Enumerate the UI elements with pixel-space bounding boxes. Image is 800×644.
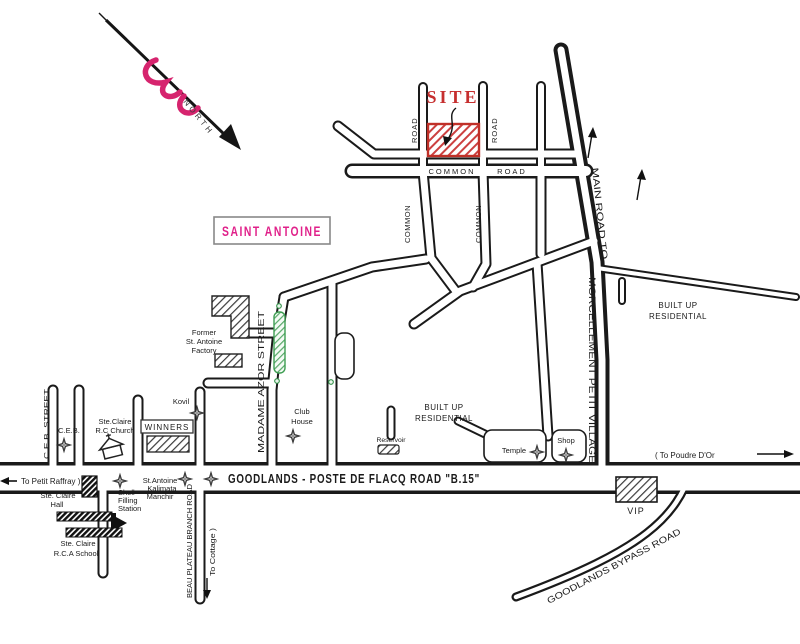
winners-building bbox=[147, 436, 189, 452]
b15-road-label: GOODLANDS - POSTE DE FLACQ ROAD "B.15" bbox=[228, 472, 480, 486]
club-house-star-icon bbox=[287, 430, 300, 443]
hall-label-2: Hall bbox=[51, 500, 64, 509]
compass-arrowhead bbox=[219, 124, 241, 150]
main-road-up-arrow-2 bbox=[637, 176, 641, 200]
site-label: SITE bbox=[426, 87, 479, 107]
loop-block bbox=[335, 333, 354, 379]
factory-label-3: Factory bbox=[191, 346, 216, 355]
common-road-word1: COMMON bbox=[429, 167, 476, 176]
built-up-residential-center: BUILT UP RESIDENTIAL bbox=[415, 403, 473, 423]
school-group: Ste. Claire R.C.A School bbox=[54, 512, 127, 558]
green-junction-dot bbox=[329, 380, 334, 385]
main-road-up-arrow-1 bbox=[588, 134, 592, 158]
vip-group: VIP bbox=[616, 477, 657, 516]
road-stub-right-label: ROAD bbox=[490, 117, 499, 143]
factory-group: Former St. Antoine Factory bbox=[186, 296, 249, 367]
built-up-label-2: RESIDENTIAL bbox=[415, 414, 473, 423]
church-label-2: R.C Church bbox=[95, 426, 134, 435]
school-building-1 bbox=[57, 512, 112, 521]
ceb-label: C.E.B. bbox=[58, 426, 80, 435]
compass-tail bbox=[99, 13, 106, 20]
shell-label-3: Station bbox=[118, 504, 141, 513]
north-compass: NORTH bbox=[99, 13, 241, 150]
shop-block bbox=[552, 430, 586, 462]
green-junction-dot bbox=[275, 379, 280, 384]
green-features bbox=[274, 304, 333, 385]
compass-shaft bbox=[106, 20, 226, 136]
club-house-label-1: Club bbox=[294, 407, 309, 416]
hall-building bbox=[82, 476, 97, 497]
morcellement-label: MORCELLEMENT PETIT VILLAGE bbox=[587, 277, 597, 463]
ceb-street-label: C.E.B. STREET bbox=[42, 388, 51, 459]
to-cottage-label: To Cottage ) bbox=[208, 527, 217, 576]
road-stub-left-label: ROAD bbox=[410, 117, 419, 143]
school-flag bbox=[116, 517, 127, 529]
built-up-residential-top: BUILT UP RESIDENTIAL bbox=[649, 301, 707, 321]
north-label: NORTH bbox=[181, 98, 215, 137]
school-label-2: R.C.A School bbox=[54, 549, 99, 558]
school-building-2 bbox=[66, 528, 122, 537]
temple-label: Temple bbox=[502, 446, 526, 455]
main-road-up-arrowhead-1 bbox=[588, 127, 597, 138]
school-label-1: Ste. Claire bbox=[60, 539, 95, 548]
kovil-label: Kovil bbox=[173, 397, 190, 406]
area-label: SAINT ANTOINE bbox=[222, 224, 322, 239]
bypass-label: GOODLANDS BYPASS ROAD bbox=[545, 526, 683, 606]
built-up-label-1: BUILT UP bbox=[424, 403, 463, 412]
map-canvas: NORTH SITE SAINT ANTOINE ROAD ROAD COMMO… bbox=[0, 0, 800, 644]
vip-label: VIP bbox=[627, 506, 645, 516]
road-labels: ROAD ROAD COMMON ROAD COMMON COMMON MAIN… bbox=[21, 117, 715, 605]
vip-building bbox=[616, 477, 657, 502]
club-house-group: Club House bbox=[287, 407, 313, 443]
church-label-1: Ste.Claire bbox=[99, 417, 132, 426]
to-poudre-dor-label: ( To Poudre D'Or bbox=[655, 451, 715, 460]
factory-building bbox=[212, 296, 249, 338]
site-group: SITE bbox=[426, 87, 479, 156]
shop-label: Shop bbox=[557, 436, 575, 445]
green-strip bbox=[274, 312, 285, 373]
main-road-up-arrowhead-2 bbox=[637, 169, 646, 180]
common-vert-right-label: COMMON bbox=[474, 205, 483, 243]
hall-label-1: Ste. Claire bbox=[40, 491, 75, 500]
poudre-dor-arrowhead bbox=[784, 450, 794, 458]
to-petit-raffray-label: To Petit Raffray ) bbox=[21, 477, 81, 486]
madame-azor-street-label: MADAME AZOR STREET bbox=[257, 311, 266, 453]
road-casings bbox=[0, 50, 800, 599]
factory-annex bbox=[215, 354, 242, 367]
area-label-box: SAINT ANTOINE bbox=[214, 217, 330, 244]
reservoir-group: Reservoir bbox=[376, 437, 406, 454]
road-fills bbox=[0, 50, 800, 599]
common-road-word2: ROAD bbox=[497, 167, 527, 176]
reservoir-building bbox=[378, 445, 399, 454]
built-up-label-1: BUILT UP bbox=[658, 301, 697, 310]
beau-plateau-label: BEAU PLATEAU BRANCH ROAD bbox=[185, 483, 194, 598]
ceb-star-icon bbox=[58, 439, 71, 452]
common-vert-left-label: COMMON bbox=[403, 205, 412, 243]
factory-label-1: Former bbox=[192, 328, 217, 337]
site-plot bbox=[428, 124, 479, 156]
winners-label: WINNERS bbox=[145, 423, 190, 432]
compass-ribbon-1 bbox=[145, 60, 180, 97]
built-up-label-2: RESIDENTIAL bbox=[649, 312, 707, 321]
reservoir-label: Reservoir bbox=[376, 437, 406, 444]
club-house-label-2: House bbox=[291, 417, 313, 426]
map-page: NORTH SITE SAINT ANTOINE ROAD ROAD COMMO… bbox=[0, 0, 800, 644]
green-junction-dot bbox=[277, 304, 282, 309]
manchir-label-3: Manchir bbox=[147, 492, 174, 501]
factory-label-2: St. Antoine bbox=[186, 337, 222, 346]
church-group: Ste.Claire R.C Church bbox=[95, 417, 134, 460]
winners-group: WINNERS bbox=[141, 420, 193, 452]
